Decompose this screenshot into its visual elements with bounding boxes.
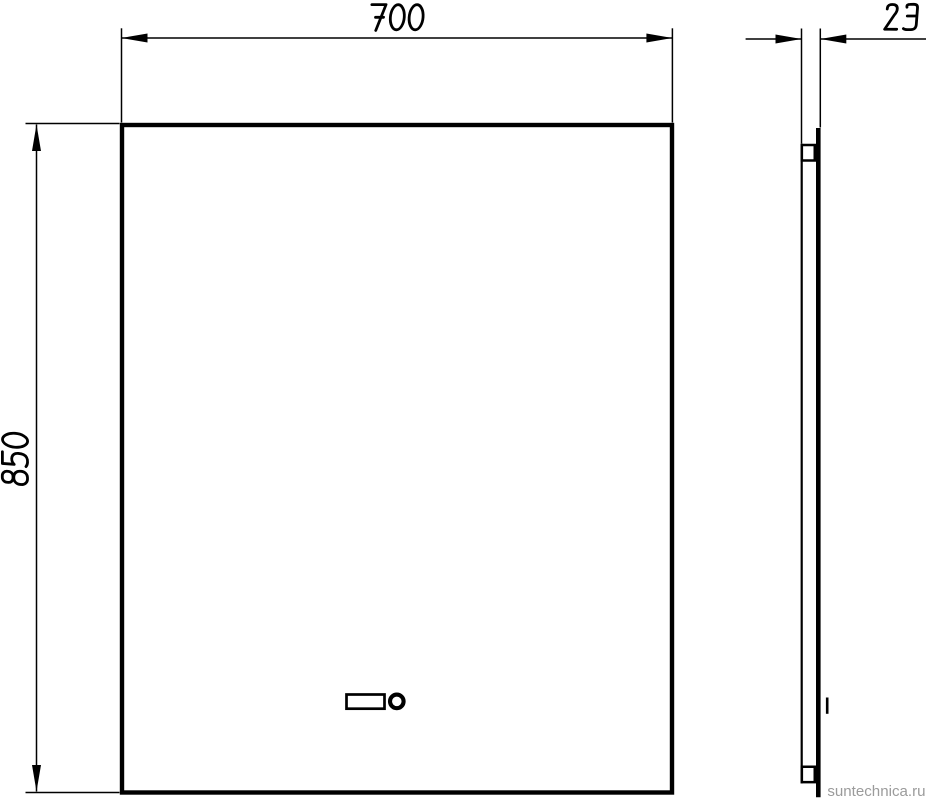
- svg-text:suntechnica.ru: suntechnica.ru: [827, 783, 925, 800]
